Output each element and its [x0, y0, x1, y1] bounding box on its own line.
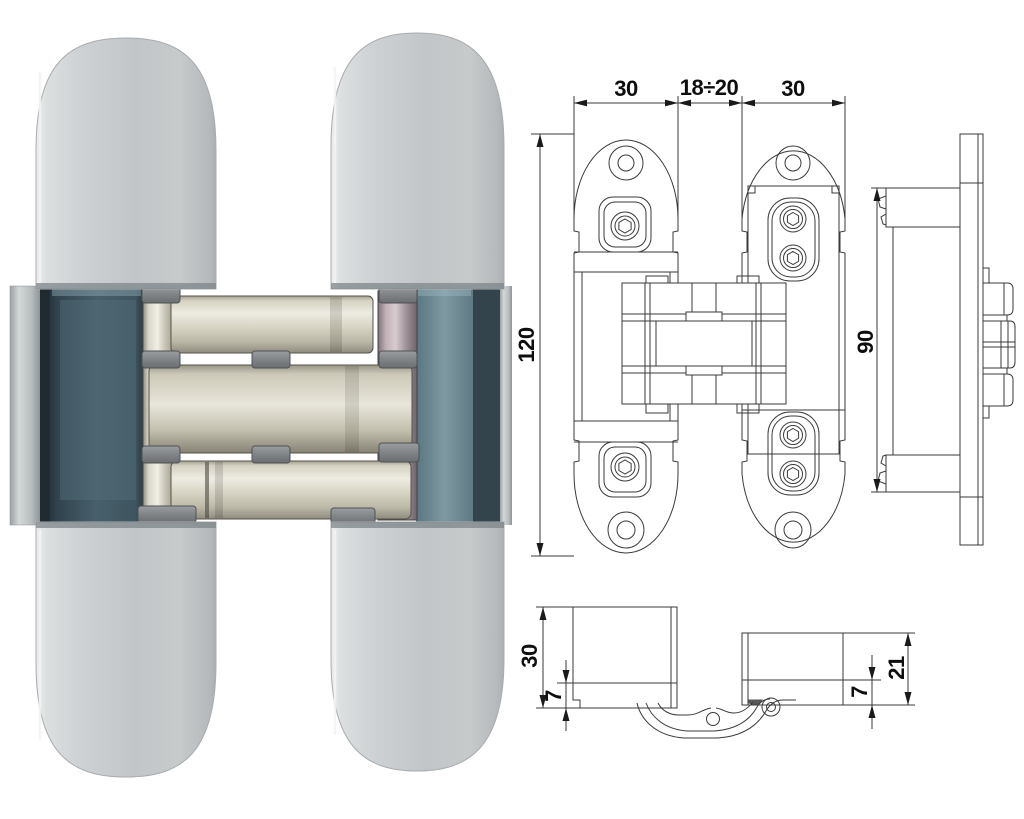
dim-section-right-depth: 21 — [884, 626, 910, 710]
dim-section-right-inset: 7 — [847, 650, 873, 734]
front-view — [531, 96, 845, 556]
screenshot-root: 30 18÷20 30 120 90 30 7 7 21 — [0, 0, 1024, 819]
front-view-linkage — [622, 283, 786, 404]
dim-side-height: 90 — [853, 300, 879, 384]
dim-front-gap: 18÷20 — [667, 75, 751, 101]
front-view-top-dimensions — [574, 96, 845, 219]
dim-front-height: 120 — [514, 303, 540, 387]
dim-section-left-inset: 7 — [541, 654, 567, 738]
dim-section-left-depth: 30 — [517, 614, 543, 698]
section-view-strap — [637, 698, 796, 738]
side-view — [871, 134, 1015, 545]
dim-front-width-left: 30 — [584, 76, 668, 102]
dim-front-width-right: 30 — [751, 76, 835, 102]
